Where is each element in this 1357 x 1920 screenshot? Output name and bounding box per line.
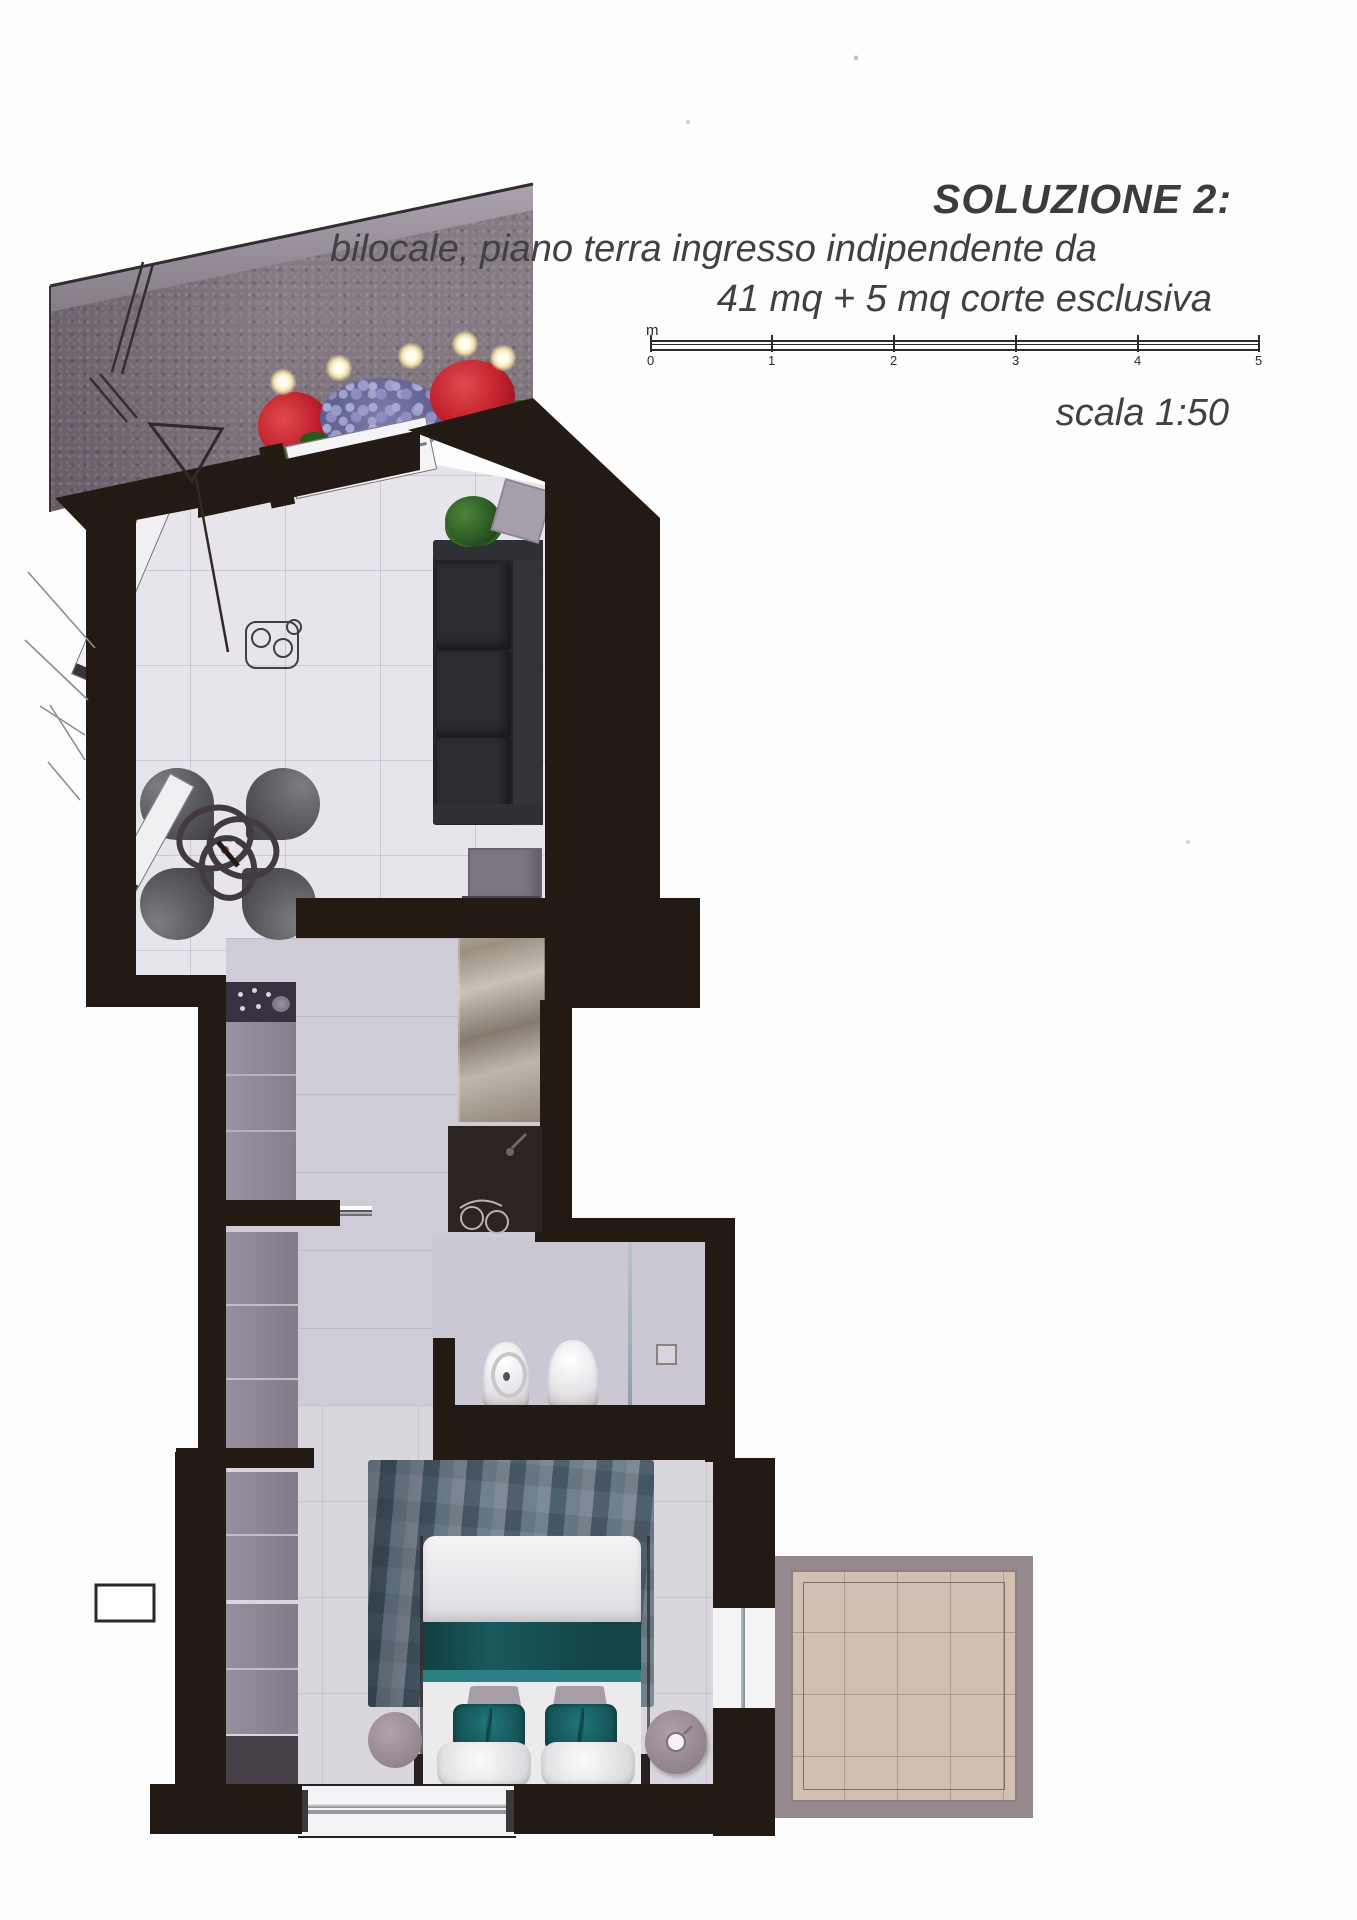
sketch-chair: [274, 639, 292, 657]
kettle-handle: [684, 1726, 692, 1734]
scan-speck: [686, 120, 690, 124]
scanned-floorplan-page: SOLUZIONE 2: bilocale, piano terra ingre…: [0, 0, 1357, 1920]
legend-rectangle: [96, 1585, 154, 1621]
drafting-lines: [90, 374, 137, 422]
sketch-chair: [252, 629, 270, 647]
sketch-chair: [287, 620, 301, 634]
scan-speck: [854, 56, 859, 61]
sketch-table: [246, 622, 298, 668]
drafting-triangle: [150, 424, 222, 481]
sketch-stool: [460, 1200, 508, 1233]
faucet: [506, 1148, 514, 1156]
drafting-lines: [112, 262, 153, 374]
table-decor: [230, 841, 236, 847]
drafting-stem: [196, 478, 228, 652]
pencil-lines: [25, 572, 95, 800]
faucet: [512, 1134, 526, 1148]
sketch-layer: [0, 0, 1357, 1920]
kettle: [667, 1733, 685, 1751]
scan-speck: [1186, 840, 1190, 844]
